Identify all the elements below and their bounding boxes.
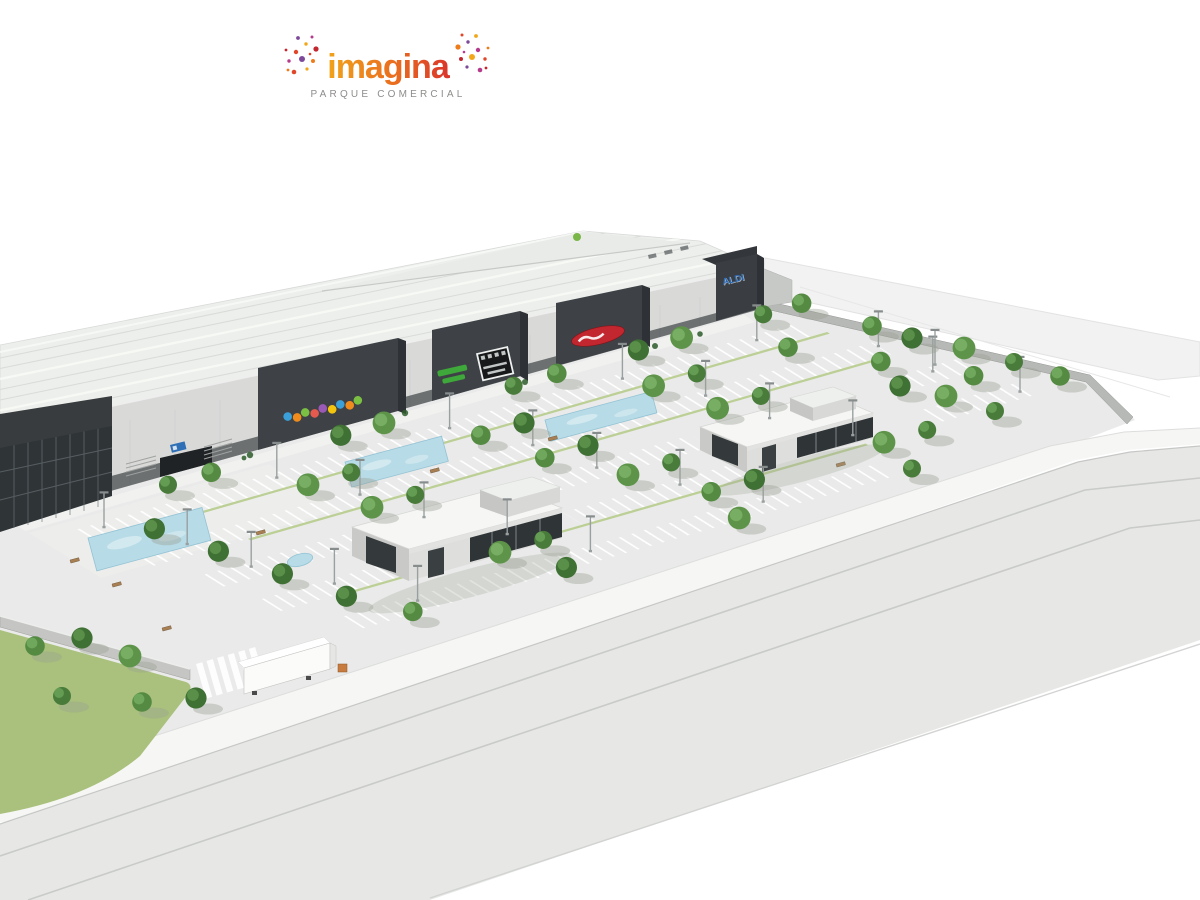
confetti-dot [313,46,318,51]
confetti-dot [474,34,478,38]
brand-subtitle: PARQUE COMERCIAL [311,89,466,100]
confetti-dot [299,56,305,62]
confetti-dot [485,67,488,70]
confetti-dot [309,53,312,56]
confetti-dot [469,54,475,60]
confetti-dot [294,50,298,54]
confetti-dot [465,65,468,68]
confetti-dot [311,59,315,63]
confetti-dot [311,36,314,39]
confetti-dot [463,51,466,54]
confetti-dot [461,34,464,37]
confetti-dot [285,49,288,52]
confetti-dot [459,57,463,61]
confetti-dot [292,70,297,75]
render-canvas: ALDI ALDI [0,0,1200,900]
confetti-dot [296,36,300,40]
confetti-dot [304,42,307,45]
confetti-dots-right [455,34,489,73]
confetti-dot [476,48,480,52]
confetti-dot [478,68,483,73]
site-render: ALDI ALDI [0,0,1200,900]
brand-name: imagina [327,48,451,86]
confetti-dots-left [285,36,319,75]
confetti-dot [466,40,469,43]
rooftop-unit [573,233,581,241]
pallet [338,664,347,672]
confetti-dot [305,67,308,70]
framed-sign [477,347,513,380]
brand-logo: imagina PARQUE COMERCIAL [285,34,490,101]
confetti-dot [287,69,290,72]
confetti-dot [287,59,290,62]
confetti-dot [487,47,490,50]
confetti-dot [483,57,486,60]
confetti-dot [455,44,460,49]
